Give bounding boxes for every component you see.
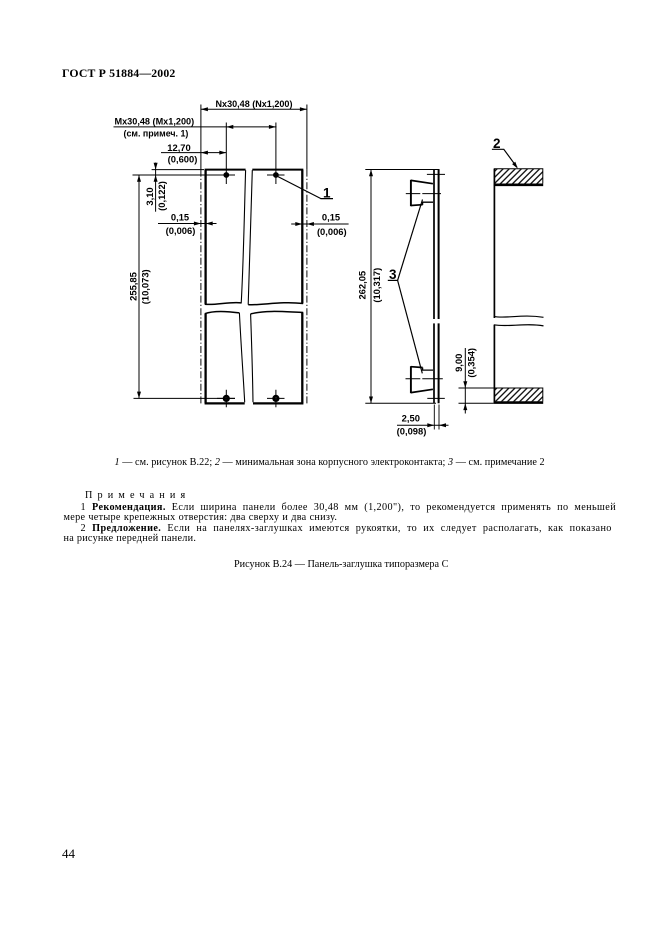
svg-text:2: 2 bbox=[493, 136, 501, 151]
svg-text:(0,354): (0,354) bbox=[465, 348, 476, 378]
svg-text:(0,006): (0,006) bbox=[317, 226, 347, 237]
svg-text:Mх30,48 (Mх1,200): Mх30,48 (Mх1,200) bbox=[115, 117, 195, 127]
svg-text:(0,098): (0,098) bbox=[397, 426, 427, 437]
svg-text:0,15: 0,15 bbox=[171, 212, 189, 223]
svg-text:(0,600): (0,600) bbox=[168, 153, 198, 164]
svg-text:262,05: 262,05 bbox=[356, 271, 367, 300]
svg-text:3: 3 bbox=[389, 267, 397, 282]
svg-text:1: 1 bbox=[323, 185, 331, 200]
svg-text:3,10: 3,10 bbox=[144, 187, 155, 205]
svg-text:9,00: 9,00 bbox=[453, 354, 464, 372]
svg-text:0,15: 0,15 bbox=[322, 211, 340, 222]
svg-text:(10,317): (10,317) bbox=[371, 268, 382, 303]
svg-text:(0,122): (0,122) bbox=[156, 181, 167, 211]
svg-text:(10,073): (10,073) bbox=[140, 269, 151, 304]
svg-text:12,70: 12,70 bbox=[167, 142, 190, 153]
svg-text:255,85: 255,85 bbox=[127, 272, 138, 301]
svg-text:2,50: 2,50 bbox=[402, 413, 420, 424]
svg-text:(см. примеч. 1): (см. примеч. 1) bbox=[124, 129, 189, 139]
svg-text:(0,006): (0,006) bbox=[166, 225, 196, 236]
svg-text:Nx30,48 (Nx1,200): Nx30,48 (Nx1,200) bbox=[216, 99, 293, 109]
